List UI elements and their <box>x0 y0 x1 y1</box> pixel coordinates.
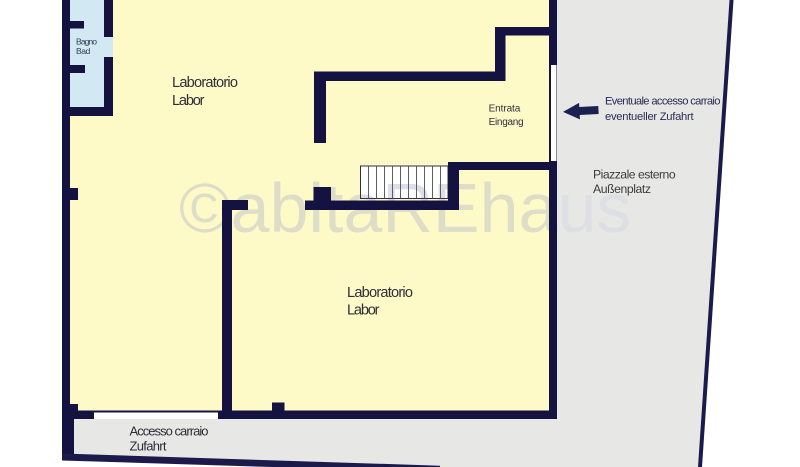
svg-text:Zufahrt: Zufahrt <box>130 438 167 453</box>
svg-text:Bagno: Bagno <box>76 36 97 46</box>
svg-text:Außenplatz: Außenplatz <box>593 182 651 196</box>
svg-text:Piazzale esterno: Piazzale esterno <box>593 167 676 181</box>
svg-text:Eingang: Eingang <box>489 117 524 128</box>
svg-text:Labor: Labor <box>172 93 205 109</box>
svg-text:Laboratorio: Laboratorio <box>172 75 238 91</box>
svg-text:Labor: Labor <box>347 303 380 319</box>
svg-text:Laboratorio: Laboratorio <box>347 285 413 301</box>
svg-text:eventueller Zufahrt: eventueller Zufahrt <box>605 111 694 123</box>
svg-text:Entrata: Entrata <box>489 104 521 115</box>
svg-text:Accesso carraio: Accesso carraio <box>130 423 209 438</box>
svg-text:Eventuale accesso carraio: Eventuale accesso carraio <box>605 96 721 108</box>
svg-text:Bad: Bad <box>76 46 91 56</box>
